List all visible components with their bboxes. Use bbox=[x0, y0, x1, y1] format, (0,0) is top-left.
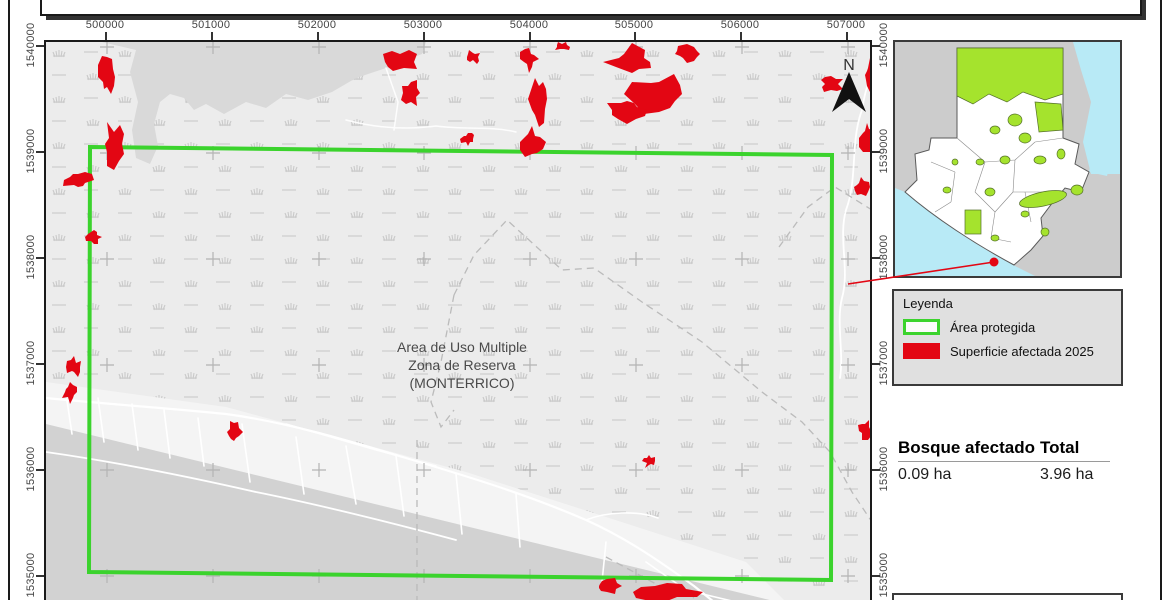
legend-item-affected: Superficie afectada 2025 bbox=[903, 343, 1121, 359]
y-axis-tick-right bbox=[872, 575, 880, 577]
y-axis-tick-right bbox=[872, 151, 880, 153]
page-border-right bbox=[1160, 0, 1162, 600]
inset-map-guatemala bbox=[893, 40, 1122, 278]
stats-value-total: 3.96 ha bbox=[1040, 466, 1124, 484]
y-axis-tick-left bbox=[36, 575, 44, 577]
x-axis-tick bbox=[211, 32, 213, 40]
title-box bbox=[40, 0, 1142, 16]
main-map: N Area de Uso Multiple Zona de Reserva (… bbox=[44, 40, 872, 600]
x-axis-label: 506000 bbox=[721, 19, 760, 31]
x-axis-label: 505000 bbox=[615, 19, 654, 31]
x-axis-label: 504000 bbox=[510, 19, 549, 31]
legend-item-protected: Área protegida bbox=[903, 319, 1121, 335]
y-axis-tick-right bbox=[872, 257, 880, 259]
legend-title: Leyenda bbox=[903, 296, 1121, 311]
x-axis-tick bbox=[740, 32, 742, 40]
affected-surface-swatch bbox=[903, 343, 940, 359]
stats-value-bosque: 0.09 ha bbox=[898, 466, 1040, 484]
x-axis-tick bbox=[423, 32, 425, 40]
stats-header-row: Bosque afectado Total bbox=[898, 438, 1110, 462]
legend: Leyenda Área protegida Superficie afecta… bbox=[892, 289, 1123, 386]
svg-text:(MONTERRICO): (MONTERRICO) bbox=[410, 375, 515, 391]
y-axis-tick-right bbox=[872, 45, 880, 47]
scalebar-box-cutoff bbox=[892, 593, 1123, 600]
stats-header-bosque: Bosque afectado bbox=[898, 438, 1040, 458]
y-axis-tick-left bbox=[36, 257, 44, 259]
protected-area-swatch bbox=[903, 319, 940, 335]
north-label: N bbox=[843, 57, 855, 74]
legend-item-label: Área protegida bbox=[950, 320, 1035, 335]
x-axis-label: 507000 bbox=[827, 19, 866, 31]
legend-item-label: Superficie afectada 2025 bbox=[950, 344, 1094, 359]
page-border-left bbox=[8, 0, 10, 600]
stats-header-total: Total bbox=[1040, 438, 1124, 458]
main-map-canvas: N Area de Uso Multiple Zona de Reserva (… bbox=[46, 42, 872, 600]
x-axis-label: 503000 bbox=[404, 19, 443, 31]
area-name-label: Area de Uso Multiple Zona de Reserva (MO… bbox=[397, 339, 527, 391]
x-axis-tick bbox=[634, 32, 636, 40]
svg-text:Area de Uso Multiple: Area de Uso Multiple bbox=[397, 339, 527, 355]
x-axis-label: 500000 bbox=[86, 19, 125, 31]
x-axis-tick bbox=[317, 32, 319, 40]
affected-forest-stats: Bosque afectado Total 0.09 ha 3.96 ha bbox=[898, 438, 1124, 484]
y-axis-tick-left bbox=[36, 363, 44, 365]
y-axis-tick-left bbox=[36, 45, 44, 47]
x-axis-tick bbox=[846, 32, 848, 40]
map-layout-page: { "map": { "north": "N", "area_label": {… bbox=[0, 0, 1170, 600]
x-axis-tick bbox=[105, 32, 107, 40]
y-axis-tick-right bbox=[872, 363, 880, 365]
svg-text:Zona de Reserva: Zona de Reserva bbox=[408, 357, 516, 373]
stats-value-row: 0.09 ha 3.96 ha bbox=[898, 462, 1124, 484]
y-axis-tick-right bbox=[872, 469, 880, 471]
x-axis-tick bbox=[529, 32, 531, 40]
y-axis-tick-left bbox=[36, 151, 44, 153]
y-axis-tick-left bbox=[36, 469, 44, 471]
x-axis-label: 501000 bbox=[192, 19, 231, 31]
x-axis-label: 502000 bbox=[298, 19, 337, 31]
